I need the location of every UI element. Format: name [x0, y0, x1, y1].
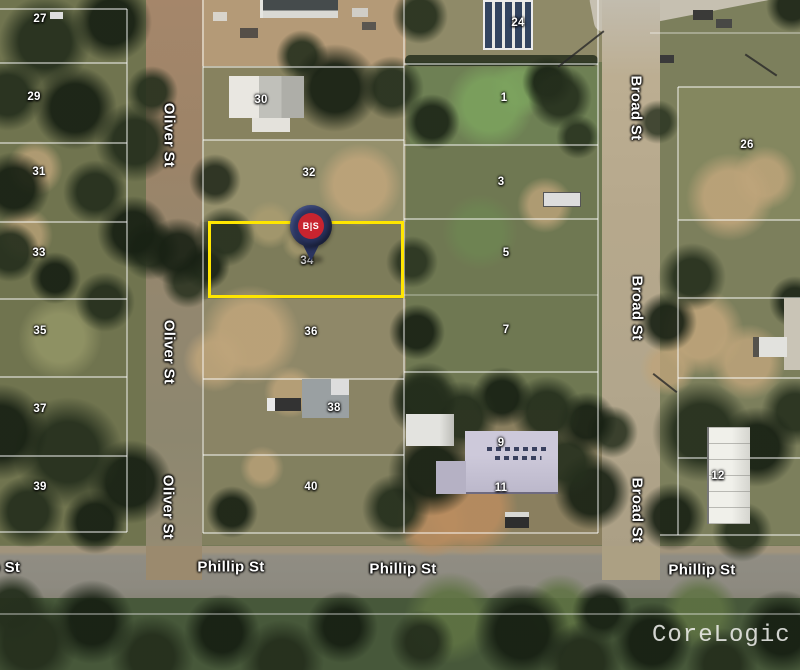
agency-logo-badge: B|S	[298, 213, 324, 239]
lot-label-32: 32	[302, 167, 315, 179]
street-label-phillip-st-partial: Phillip St	[0, 559, 20, 576]
street-label-broad-st-3: Broad St	[629, 478, 646, 543]
pin-circle: B|S	[290, 205, 332, 247]
lot-label-39: 39	[33, 481, 46, 493]
aerial-parcel-map: 27 29 31 33 35 37 39 30 32 34 36 38 40 2…	[0, 0, 800, 670]
building-top-shed	[260, 0, 338, 18]
street-label-phillip-st-2: Phillip St	[369, 561, 436, 578]
building-lot9-shed	[406, 414, 454, 446]
junk-item-2	[240, 28, 258, 38]
truck-lot38	[267, 398, 301, 411]
lot-label-36: 36	[304, 326, 317, 338]
lot-label-24: 24	[511, 17, 524, 29]
building-lot11-annex	[436, 461, 466, 494]
bus-lot11	[505, 512, 529, 528]
street-label-broad-st-1: Broad St	[628, 76, 645, 141]
lot-label-31: 31	[32, 166, 45, 178]
junk-item-3	[352, 8, 368, 17]
lot-label-33: 33	[32, 247, 45, 259]
building-lot30-annex	[252, 118, 290, 132]
street-label-oliver-st-1: Oliver St	[161, 103, 178, 167]
lot-label-5: 5	[503, 247, 510, 259]
lot-label-27: 27	[33, 13, 46, 25]
building-lot24-solar-roof	[483, 0, 533, 50]
vehicle-broad-st-verge	[660, 55, 674, 63]
lot-label-3: 3	[498, 176, 505, 188]
broad-phillip-intersection	[602, 546, 660, 580]
lot-label-7: 7	[503, 324, 510, 336]
lot-label-40: 40	[304, 481, 317, 493]
lot-label-12: 12	[711, 470, 724, 482]
lot-label-35: 35	[33, 325, 46, 337]
street-label-phillip-st-1: Phillip St	[197, 559, 264, 576]
junk-item-1	[213, 12, 227, 21]
terrain-left-block	[0, 0, 146, 545]
terrain-lot1	[410, 67, 598, 145]
lot-label-1: 1	[501, 92, 508, 104]
vehicle-top-right-2	[716, 19, 732, 28]
oliver-st-road	[146, 0, 202, 548]
corelogic-watermark: CoreLogic	[652, 622, 791, 649]
terrain-lot40	[202, 455, 406, 545]
street-label-broad-st-2: Broad St	[629, 276, 646, 341]
street-label-oliver-st-2: Oliver St	[161, 320, 178, 384]
lot-label-29: 29	[27, 91, 40, 103]
terrain-lot36	[202, 299, 406, 379]
van-right-block	[753, 337, 787, 357]
street-label-oliver-st-3: Oliver St	[160, 475, 177, 539]
building-right-edge	[784, 298, 800, 370]
lot-label-11: 11	[495, 482, 508, 494]
property-marker-pin[interactable]: B|S	[285, 205, 337, 267]
car-top-left	[50, 12, 63, 19]
building-lot9-11-hall	[465, 431, 558, 494]
vehicle-top-right-1	[693, 10, 713, 20]
lot-label-26: 26	[740, 139, 753, 151]
lot-label-30: 30	[254, 94, 267, 106]
building-lot38-shed-white-corner	[331, 379, 349, 395]
street-label-phillip-st-3: Phillip St	[668, 562, 735, 579]
lot-label-9: 9	[498, 437, 505, 449]
trailer-lot3	[543, 192, 581, 207]
lot-label-37: 37	[33, 403, 46, 415]
terrain-lot26	[678, 87, 800, 220]
lot-label-38: 38	[327, 402, 340, 414]
oliver-phillip-intersection	[146, 546, 202, 580]
junk-item-4	[362, 22, 376, 30]
